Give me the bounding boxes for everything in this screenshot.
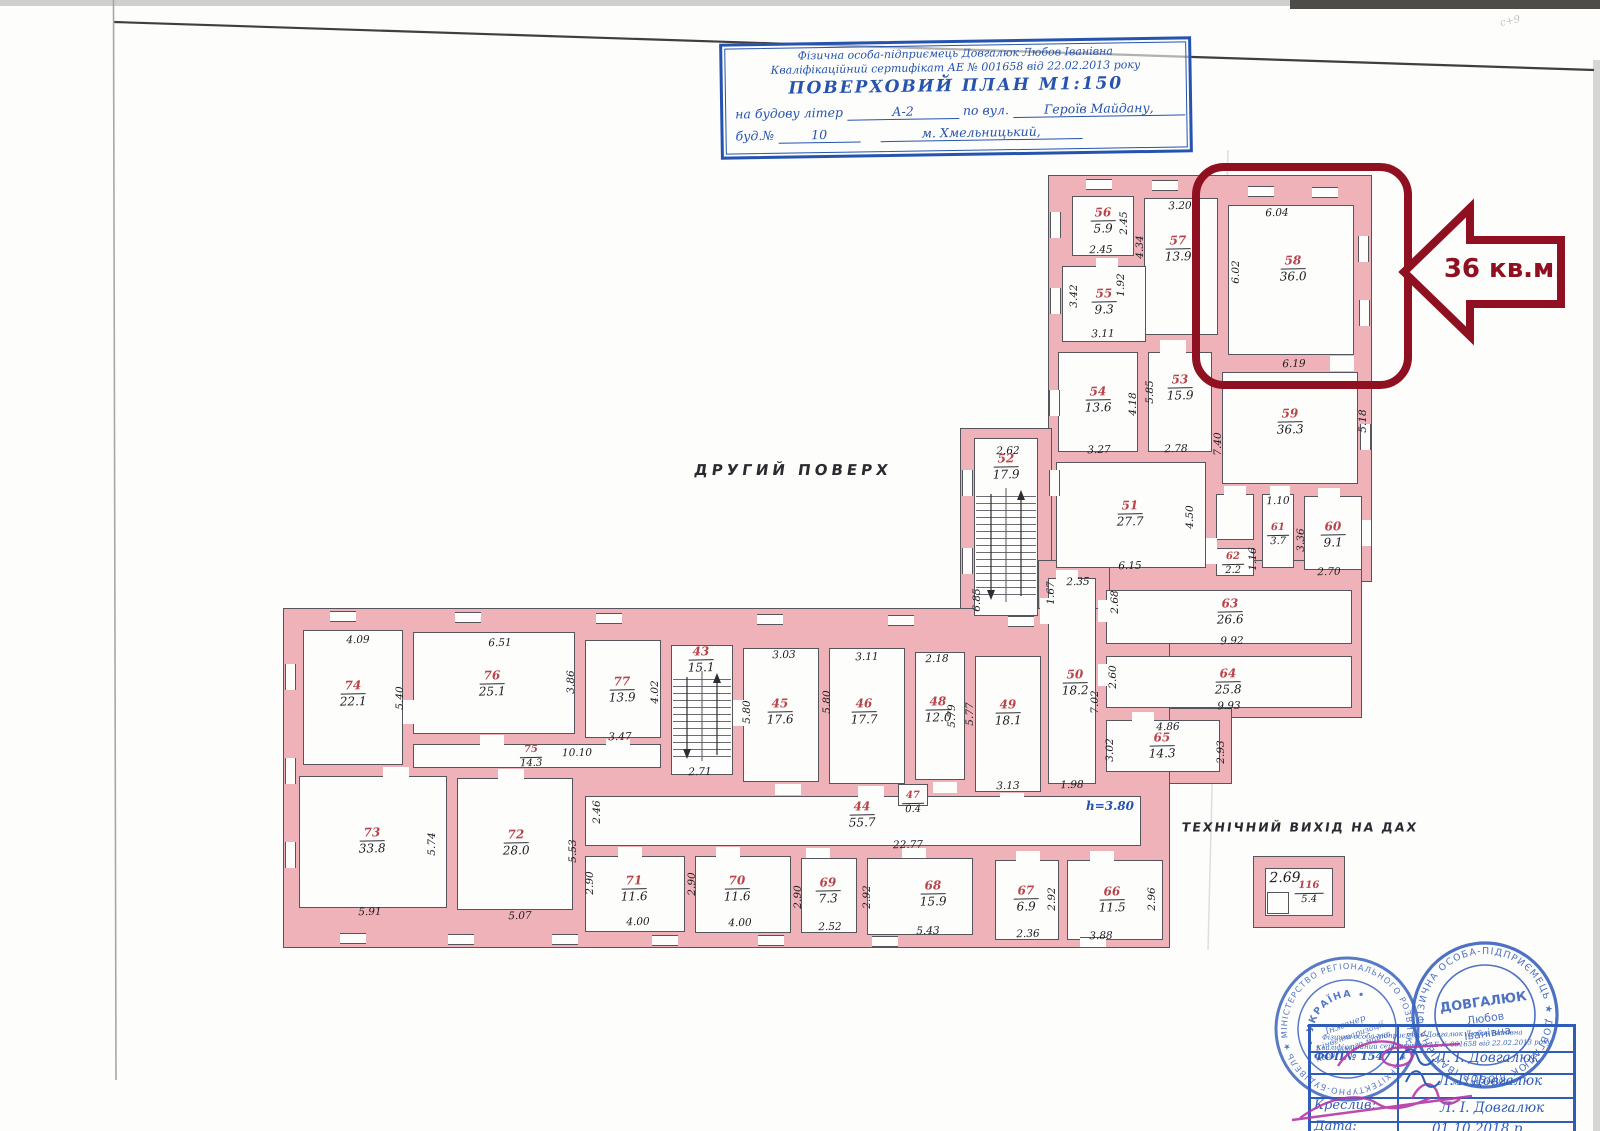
room-label-77: 7713.9 <box>608 672 635 704</box>
dimension-label: 5.85 <box>1144 380 1156 403</box>
room-label-55: 559.3 <box>1091 284 1116 316</box>
dimension-label: 4.86 <box>1156 721 1180 733</box>
door-opening <box>618 847 642 857</box>
highlight-room-58-box <box>1192 163 1412 389</box>
window-marker <box>330 611 356 622</box>
dimension-label: 5.80 <box>741 700 753 723</box>
dimension-label: 4.09 <box>346 634 370 646</box>
corridor-above-62 <box>1216 494 1254 540</box>
dimension-label: 2.92 <box>861 885 873 908</box>
height-note: h=3.80 <box>1086 799 1134 813</box>
door-opening <box>806 848 830 858</box>
window-marker <box>285 758 296 784</box>
window-marker <box>962 548 973 574</box>
door-opening <box>1206 538 1217 564</box>
room-label-45: 4517.6 <box>766 694 793 726</box>
dimension-label: 2.78 <box>1164 443 1188 455</box>
door-opening <box>1098 600 1107 622</box>
door-opening <box>1318 488 1340 497</box>
table-fop-number: ФОП№ 1547 <box>1314 1050 1391 1063</box>
dimension-label: 3.86 <box>565 670 577 693</box>
window-marker <box>888 615 914 626</box>
window-marker <box>455 612 481 623</box>
room-label-60: 609.1 <box>1320 517 1345 549</box>
window-marker <box>285 664 296 690</box>
roof-exit-label: ТЕХНІЧНИЙ ВИХІД НА ДАХ <box>1181 820 1419 835</box>
dimension-label: 2.35 <box>1066 576 1090 588</box>
stairs-52-arrows <box>976 488 1036 604</box>
dimension-label: 5.91 <box>358 906 382 918</box>
window-marker <box>1152 180 1178 191</box>
door-opening <box>716 847 740 857</box>
dimension-label: 2.96 <box>1146 887 1158 910</box>
dimension-label: 5.40 <box>394 686 406 709</box>
door-opening <box>1098 664 1107 686</box>
dimension-label: 5.80 <box>821 690 833 713</box>
door-opening <box>480 735 504 745</box>
room-label-56: 565.9 <box>1090 203 1115 235</box>
dimension-label: 5.07 <box>508 910 532 922</box>
window-marker <box>448 934 474 945</box>
room-label-49: 4918.1 <box>994 695 1021 727</box>
window-marker <box>872 936 898 947</box>
dimension-label: 6.15 <box>1118 560 1142 572</box>
dimension-label: 7.02 <box>1089 690 1101 713</box>
window-marker <box>1050 212 1061 238</box>
dimension-label: 3.20 <box>1168 200 1192 212</box>
dimension-label: 4.50 <box>1184 505 1196 528</box>
room-label-66: 6611.5 <box>1098 882 1125 914</box>
window-marker <box>1361 520 1372 546</box>
room-label-63: 6326.6 <box>1216 594 1243 626</box>
door-opening <box>858 786 884 797</box>
dimension-label: 6.51 <box>488 637 512 649</box>
scanned-floor-plan-page: с+9 <box>0 0 1600 1131</box>
dimension-label: 2.92 <box>1046 887 1058 910</box>
dimension-label: 3.47 <box>608 731 632 743</box>
door-opening <box>498 769 524 779</box>
dimension-label: 2.68 <box>1109 590 1121 613</box>
dimension-label: 9.92 <box>1220 635 1244 647</box>
table-date-value: 01.10.2018 р. <box>1432 1121 1527 1131</box>
room-label-43: 4315.1 <box>687 642 714 674</box>
door-opening <box>1096 258 1118 267</box>
room-label-59: 5936.3 <box>1276 404 1303 436</box>
dimension-label: 3.88 <box>1089 930 1113 942</box>
table-signature-1: Л. І. Довгалюк <box>1435 1050 1539 1066</box>
dimension-label: 3.02 <box>1104 738 1116 761</box>
door-opening <box>1224 486 1246 495</box>
window-marker <box>757 614 783 625</box>
dimension-label: 4.02 <box>649 680 661 703</box>
dimension-label: 1.98 <box>1060 779 1084 791</box>
dimension-label: 5.79 <box>946 704 958 727</box>
dimension-label: 10.10 <box>562 747 592 760</box>
dimension-label: 1.92 <box>1115 273 1127 296</box>
dimension-label: 2.36 <box>1016 928 1040 940</box>
title-building-prefix: на будову літер <box>735 105 843 122</box>
window-marker <box>1008 616 1034 627</box>
room-label-69: 697.3 <box>815 873 840 905</box>
dimension-label: 5.74 <box>426 832 438 855</box>
room-label-46: 4617.7 <box>850 694 877 726</box>
door-opening <box>1090 851 1114 861</box>
dimension-label: 2.90 <box>584 871 596 894</box>
room-label-51: 5127.7 <box>1116 496 1143 528</box>
window-marker <box>596 613 622 624</box>
door-opening <box>933 782 957 793</box>
dimension-label: 1.67 <box>1045 581 1057 604</box>
dimension-label: 4.00 <box>728 917 752 929</box>
door-opening <box>1132 712 1154 721</box>
dimension-label: 3.42 <box>1068 284 1080 307</box>
room-label-50: 5018.2 <box>1061 665 1088 697</box>
dimension-label: 2.93 <box>1215 740 1227 763</box>
room-label-71: 7111.6 <box>620 871 647 903</box>
room-label-64: 6425.8 <box>1214 664 1241 696</box>
dimension-label: 2.69 <box>1269 870 1300 887</box>
title-number-prefix: буд.№ <box>735 128 774 144</box>
dimension-label: 7.40 <box>1212 432 1224 455</box>
window-marker <box>652 935 678 946</box>
title-building-number: 10 <box>778 127 860 144</box>
table-date-label: Дата: <box>1314 1119 1357 1131</box>
door-opening <box>1160 340 1186 353</box>
title-street-name: Героїв Майдану, <box>1013 99 1185 118</box>
dimension-label: 2.45 <box>1089 244 1113 256</box>
room-label-67: 676.9 <box>1013 881 1038 913</box>
dimension-label: 5.77 <box>964 702 976 725</box>
dimension-label: 4.00 <box>626 916 650 928</box>
dimension-label: 3.11 <box>855 651 879 663</box>
room-label-76: 7625.1 <box>478 666 505 698</box>
dimension-label: 3.27 <box>1087 444 1111 456</box>
dimension-label: 4.34 <box>1134 235 1146 258</box>
room-label-47: 470.4 <box>902 785 924 815</box>
title-street-prefix: по вул. <box>963 102 1009 118</box>
dimension-label: 1.10 <box>1266 495 1290 507</box>
title-city: м. Хмельницький, <box>880 123 1082 142</box>
room-label-73: 7333.8 <box>358 823 385 855</box>
dimension-label: 3.03 <box>772 649 796 661</box>
dimension-label: 2.60 <box>1107 665 1119 688</box>
window-marker <box>340 933 366 944</box>
floor-label: ДРУГИЙ ПОВЕРХ <box>693 461 893 479</box>
dimension-label: 5.53 <box>567 839 579 862</box>
room-label-44: 4455.7 <box>848 797 875 829</box>
dimension-label: 2.90 <box>792 885 804 908</box>
window-marker <box>1049 390 1060 416</box>
stairs-43-arrows <box>673 671 731 763</box>
dimension-label: 2.62 <box>996 445 1020 457</box>
room-label-53: 5315.9 <box>1166 370 1193 402</box>
room-label-61: 613.7 <box>1267 517 1289 547</box>
dimension-label: 5.18 <box>1357 409 1369 432</box>
door-opening <box>1000 793 1024 803</box>
title-building-letter: А-2 <box>847 103 959 121</box>
dimension-label: 2.46 <box>591 800 603 823</box>
room-label-72: 7228.0 <box>502 825 529 857</box>
dimension-label: 2.18 <box>925 653 949 665</box>
dimension-label: 2.90 <box>686 872 698 895</box>
dimension-label: 2.52 <box>818 921 842 933</box>
table-kresliv-label: Креслив: <box>1314 1098 1376 1113</box>
callout-area-text: 36 кв.м. <box>1440 254 1568 284</box>
dimension-label: 22.77 <box>893 839 923 852</box>
dimension-label: 6.85 <box>971 588 983 611</box>
window-marker <box>758 935 784 946</box>
door-opening <box>1270 486 1290 495</box>
window-marker <box>552 934 578 945</box>
room-label-74: 7422.1 <box>339 676 366 708</box>
linear-stamp-city: м. Хмельницьк <box>1452 1076 1516 1087</box>
room-label-57: 5713.9 <box>1164 231 1191 263</box>
room-label-70: 7011.6 <box>723 871 750 903</box>
door-opening <box>1016 851 1040 861</box>
door-opening <box>383 767 409 777</box>
dimension-label: 5.43 <box>916 925 940 937</box>
room-label-68: 6815.9 <box>919 876 946 908</box>
door-opening <box>775 784 801 795</box>
dimension-label: 2.45 <box>1118 211 1130 234</box>
window-marker <box>1050 288 1061 314</box>
dimension-label: 2.71 <box>688 766 712 778</box>
dimension-label: 9.93 <box>1217 700 1241 712</box>
dimension-label: 4.18 <box>1127 392 1139 415</box>
room-label-75: 7514.3 <box>520 739 543 769</box>
dimension-label: 2.70 <box>1317 566 1341 578</box>
dimension-label: 1.16 <box>1247 547 1259 570</box>
window-marker <box>285 842 296 868</box>
title-block: Фізична особа-підприємець Довгалюк Любов… <box>719 36 1193 159</box>
window-marker <box>962 470 973 496</box>
dimension-label: 3.36 <box>1295 528 1307 551</box>
table-signature-3: Л. І. Довгалюк <box>1440 1100 1544 1116</box>
window-marker <box>1049 470 1060 496</box>
dimension-label: 3.13 <box>996 780 1020 792</box>
dimension-label: 3.11 <box>1091 328 1115 340</box>
room-label-54: 5413.6 <box>1084 382 1111 414</box>
room-label-62: 622.2 <box>1222 546 1244 576</box>
room-116-closet <box>1267 892 1289 914</box>
window-marker <box>1086 179 1112 190</box>
